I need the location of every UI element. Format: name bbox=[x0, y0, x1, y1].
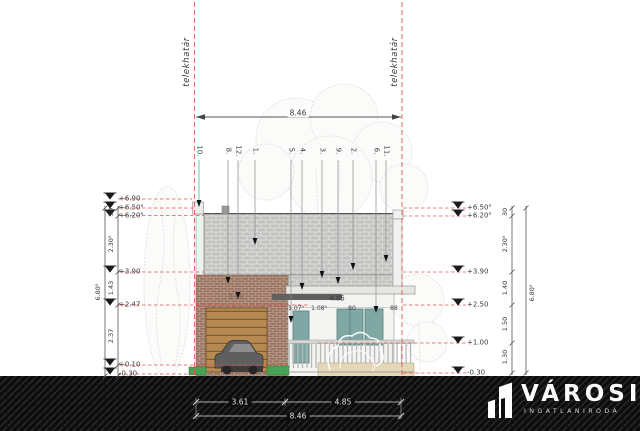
level-label-left: +0.10 bbox=[119, 362, 140, 369]
logo-name: VÁROSI bbox=[521, 383, 640, 406]
elevation-drawing-page: telekhatár telekhatár 8.46 10. 8. 12. 1.… bbox=[0, 0, 640, 431]
chain-segment-left: 1.43 bbox=[108, 281, 115, 295]
logo-subtitle: INGATLANIRODA bbox=[524, 409, 620, 415]
level-label-right: -0.30 bbox=[467, 370, 485, 377]
left-pilaster bbox=[196, 214, 205, 275]
leader-number: 3. bbox=[319, 148, 326, 155]
top-dimension-label: 8.46 bbox=[288, 109, 309, 117]
chain-segment-left: 30 bbox=[108, 208, 115, 216]
leader-number: 11. bbox=[383, 145, 390, 156]
level-label-right: +2.50 bbox=[467, 302, 488, 309]
chain-segment-right: 30 bbox=[502, 208, 509, 216]
grass-strip bbox=[267, 366, 289, 375]
chain-total-left: 6.80⁵ bbox=[95, 283, 102, 300]
leader-number: 9. bbox=[335, 148, 342, 155]
level-label-right: +6.50⁵ bbox=[467, 205, 491, 212]
chain-segment-right: 1.50 bbox=[502, 317, 509, 331]
planter-wall bbox=[318, 363, 414, 377]
window-right bbox=[365, 309, 383, 345]
leader-number: 8. bbox=[225, 148, 232, 155]
level-label-right: +1.00 bbox=[467, 340, 488, 347]
garage-width-label: 3.61 bbox=[228, 294, 244, 301]
right-pilaster bbox=[393, 219, 402, 288]
porch-segment-label: 1.08⁵ bbox=[311, 306, 327, 312]
porch-segment-label: 80 bbox=[348, 306, 356, 312]
property-boundary-label-right: telekhatár bbox=[391, 37, 400, 87]
chain-segment-right: 2.30⁵ bbox=[502, 235, 509, 252]
level-label-right: +3.90 bbox=[467, 269, 488, 276]
chain-segment-right: 1.30 bbox=[502, 350, 509, 364]
level-label-left: +6.20⁵ bbox=[119, 213, 143, 220]
chain-segment-left: 2.30⁵ bbox=[108, 235, 115, 252]
chain-total-right: 6.80⁵ bbox=[529, 284, 536, 301]
level-label-left: +6.90 bbox=[119, 196, 140, 203]
porch-width-label: 4.85 bbox=[329, 296, 345, 303]
leader-number: 4. bbox=[299, 148, 306, 155]
level-label-left: +3.90 bbox=[119, 269, 140, 276]
property-boundary-label-left: telekhatár bbox=[183, 37, 192, 87]
porch-segment-label: 1.07⁵ bbox=[288, 306, 304, 312]
leader-number: 10. bbox=[196, 145, 203, 156]
right-parapet bbox=[393, 210, 403, 219]
level-label-left: +6.50⁵ bbox=[119, 205, 143, 212]
block-wall-upper bbox=[204, 214, 394, 275]
level-label-right: +6.20⁵ bbox=[467, 213, 491, 220]
bottom-dimension-right: 4.85 bbox=[332, 398, 355, 406]
level-label-left: +2.47 bbox=[119, 302, 140, 309]
chain-segment-right: 1.40 bbox=[502, 281, 509, 295]
bottom-dimension-left: 3.61 bbox=[229, 398, 252, 406]
canopy bbox=[286, 286, 415, 294]
elevation-drawing-canvas bbox=[0, 0, 640, 431]
chain-segment-left: 2.37 bbox=[108, 329, 115, 343]
leader-number: 2. bbox=[350, 148, 357, 155]
leader-number: 1. bbox=[252, 148, 259, 155]
bottom-dimension-total: 8.46 bbox=[287, 412, 310, 420]
porch-segment-label: 88 bbox=[390, 306, 398, 312]
leader-number: 5. bbox=[288, 148, 295, 155]
level-label-left: -0.30 bbox=[119, 371, 137, 378]
leader-number: 6. bbox=[373, 148, 380, 155]
leader-number: 12. bbox=[235, 145, 242, 156]
